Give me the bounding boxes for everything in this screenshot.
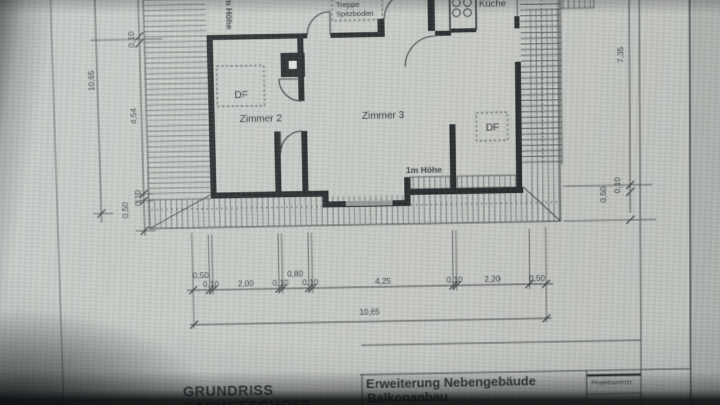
dim-left-top-wall: 0,10	[127, 31, 136, 48]
burner-icon	[452, 0, 460, 7]
room-label-zimmer2: Zimmer 2	[240, 113, 283, 125]
knee-wall-label-bottom: 1m Höhe	[406, 165, 442, 176]
roof-window-label-right: DF	[486, 122, 499, 133]
dim-bottom-seg1: 0,10	[203, 280, 219, 289]
room-label-kueche: Küche	[479, 0, 506, 10]
dim-right-eaves: 0,50	[599, 186, 608, 202]
dim-right-height: 7,35	[616, 46, 625, 63]
burner-icon	[453, 9, 461, 17]
plan-labels: Treppe Spitzboden Küche Zimmer 2 Zimmer …	[224, 0, 508, 178]
kitchen-unit	[450, 0, 477, 30]
knee-wall-strips	[410, 175, 520, 189]
stair-label-line2: Spitzboden	[336, 9, 374, 19]
stair-label-line1: Treppe	[336, 0, 360, 9]
floor-plan-drawing: Treppe Spitzboden Küche Zimmer 2 Zimmer …	[0, 0, 720, 405]
balcony-door-opening	[346, 200, 393, 206]
dim-left-eaves: 0,50	[121, 202, 130, 218]
knee-wall-label-left: 1m Höhe	[224, 0, 235, 30]
staircase	[520, 0, 595, 165]
roof-window-label-left: DF	[234, 90, 248, 101]
dim-bottom-seg7: 0,10	[447, 275, 463, 284]
project-title-line2: Balkonanbau	[367, 389, 448, 405]
dim-bottom-seg3: 0,10	[273, 279, 289, 288]
dim-left-room: 4,54	[129, 108, 138, 125]
dim-bottom-seg9: 0,50	[529, 274, 545, 283]
dim-bottom-seg0: 0,50	[193, 271, 210, 280]
dim-left-total: 10,65	[87, 70, 97, 91]
burner-icon	[464, 9, 472, 17]
dim-right-wall: 0,10	[613, 177, 622, 193]
drawing-title-line2: DACHGESCHOSS	[183, 398, 312, 405]
burner-icon	[463, 0, 471, 6]
title-block: GRUNDRISS DACHGESCHOSS Erweiterung Neben…	[182, 339, 691, 405]
drawing-title-line1: GRUNDRISS	[183, 383, 274, 400]
paper-sheet: Treppe Spitzboden Küche Zimmer 2 Zimmer …	[0, 0, 720, 405]
dim-bottom-seg2: 2,00	[238, 279, 254, 288]
project-title-line1: Erweiterung Nebengebäude	[366, 374, 536, 392]
dim-bottom-seg8: 2,20	[484, 275, 500, 284]
dim-bottom-seg4: 0,80	[287, 269, 303, 278]
dim-left-bottom-wall: 0,10	[134, 190, 143, 206]
dim-bottom-seg6: 4,25	[375, 277, 391, 286]
photo-of-floor-plan: Treppe Spitzboden Küche Zimmer 2 Zimmer …	[0, 0, 720, 405]
paper-edge-shadow	[690, 0, 720, 405]
dim-bottom-total: 10,65	[359, 308, 380, 317]
room-label-zimmer3: Zimmer 3	[362, 110, 405, 122]
dim-bottom-seg5: 0,10	[302, 278, 318, 287]
project-number-label: Projektnummer	[592, 380, 632, 387]
